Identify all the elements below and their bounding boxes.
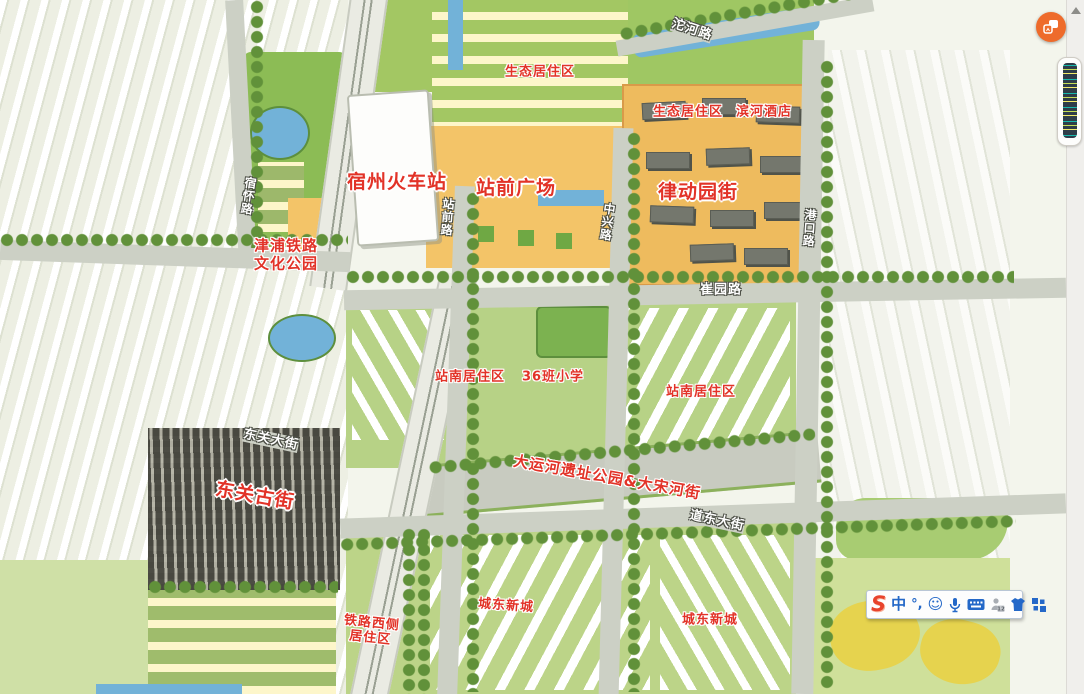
building-block: [650, 205, 695, 224]
sogou-logo[interactable]: S: [871, 594, 886, 616]
building-block: [760, 156, 804, 173]
tree-row: [148, 580, 338, 595]
building-block: [646, 152, 690, 169]
residential-slabs: [660, 535, 790, 690]
tree-row: [402, 528, 430, 694]
tree-row: [346, 270, 1014, 285]
skin-icon[interactable]: [1010, 594, 1026, 616]
tree-row: [627, 132, 642, 692]
plaza-pool-water: [538, 190, 604, 206]
tree-row: [0, 233, 348, 248]
tree-row: [250, 0, 265, 248]
building-block: [690, 243, 735, 262]
scrollbar-minimap-thumb[interactable]: [1063, 63, 1077, 138]
chinese-mode-toggle[interactable]: 中: [891, 594, 906, 616]
tree-row: [820, 60, 835, 690]
green-rows: [148, 590, 336, 694]
toolbox-icon[interactable]: [1031, 594, 1046, 616]
water-strip: [96, 684, 242, 694]
plaza-green-square: [556, 233, 572, 249]
building-block: [702, 98, 746, 115]
dongguan-ancient-street-area: [148, 428, 340, 590]
translate-icon: [1043, 19, 1059, 35]
microphone-icon[interactable]: [948, 594, 962, 616]
calendar-person-icon[interactable]: 12: [990, 594, 1005, 616]
badge-12: 12: [997, 606, 1005, 612]
building-block: [706, 147, 751, 166]
building-block: [756, 105, 801, 124]
punctuation-mode-toggle[interactable]: °,: [911, 594, 922, 616]
building-block: [710, 210, 754, 227]
plaza-green-square: [518, 230, 534, 246]
building-block: [642, 101, 687, 120]
commercial-block: [622, 84, 808, 286]
pond-water: [268, 314, 336, 362]
canal-water: [448, 0, 463, 70]
translate-floating-button[interactable]: [1036, 12, 1066, 42]
scrollbar-up-arrow-icon[interactable]: [1071, 7, 1081, 14]
ime-toolbar: S 中 °, ☺ 12: [866, 590, 1023, 619]
tree-row: [466, 192, 481, 692]
building-block: [744, 248, 788, 265]
school-field: [536, 306, 612, 358]
keyboard-icon[interactable]: [967, 594, 985, 616]
green-block: [0, 560, 150, 694]
emoji-icon[interactable]: ☺: [928, 594, 944, 616]
screen: 沱河路生态居住区生态居住区滨河酒店宿州火车站站前广场律动园街站前路中兴路港口路宿…: [0, 0, 1084, 694]
railway-station-building: [347, 89, 439, 246]
